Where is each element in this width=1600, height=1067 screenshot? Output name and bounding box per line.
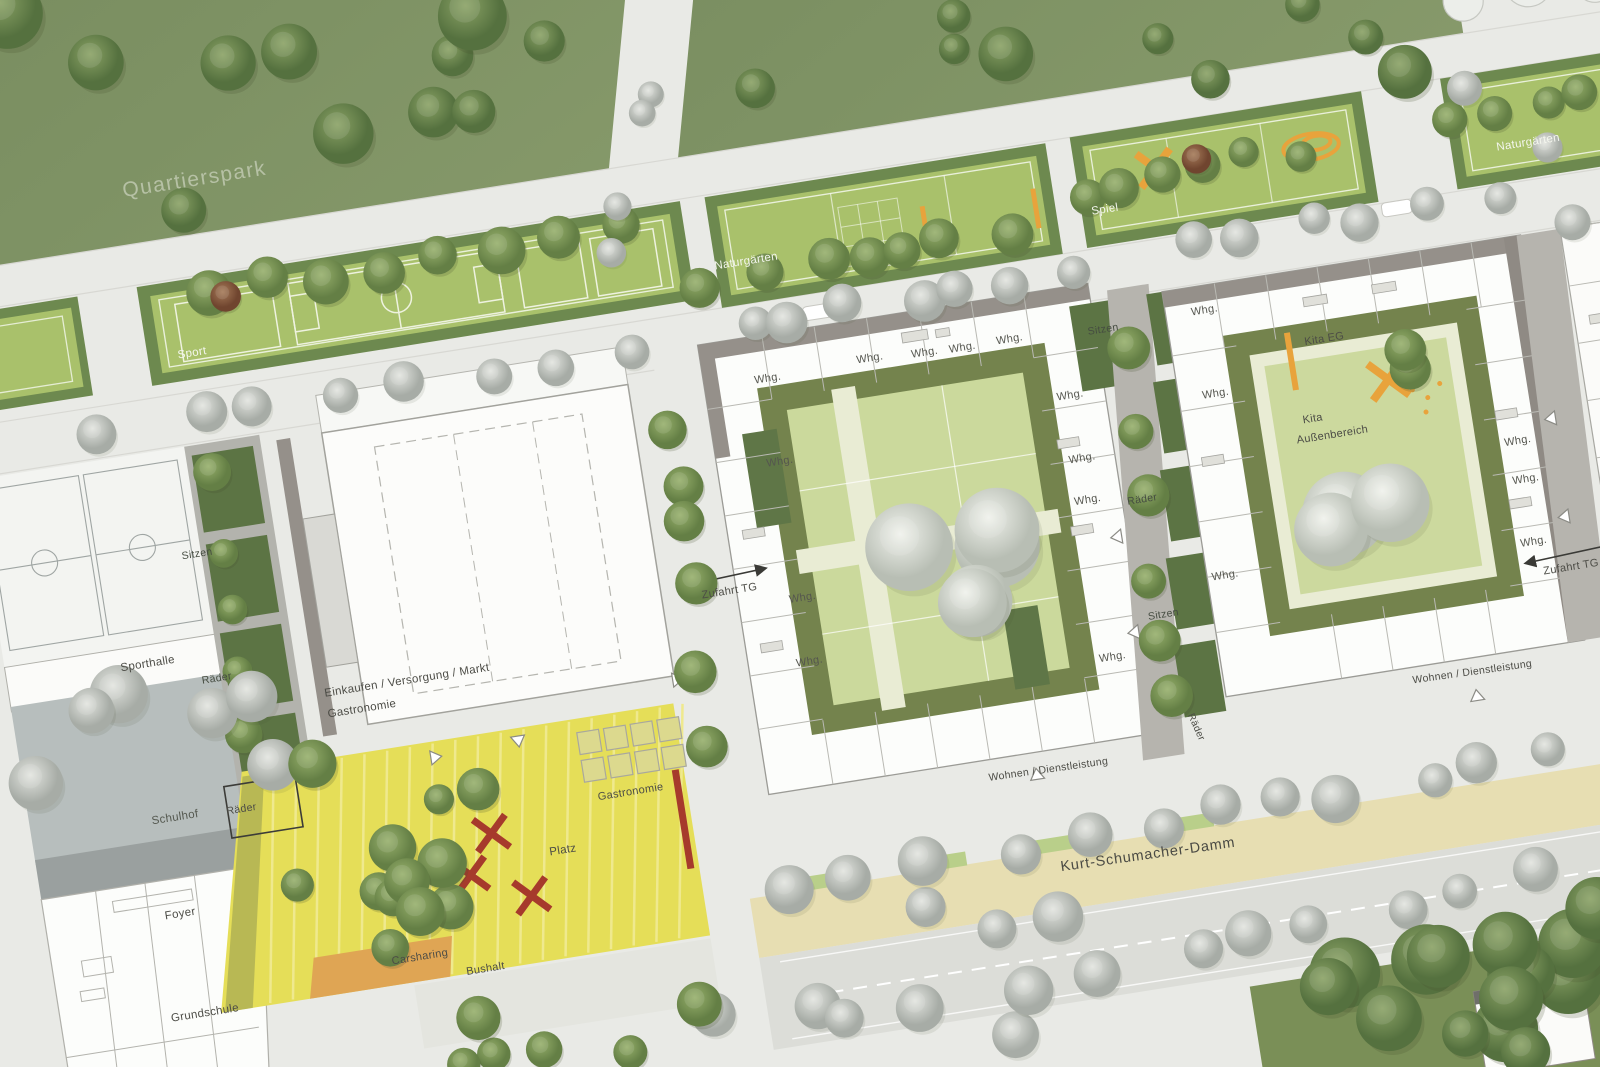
site-plan-canvas: QuartiersparkSportNaturgärtenSpielNaturg… <box>0 0 1600 1067</box>
market-hall <box>322 385 674 725</box>
site-plan: QuartiersparkSportNaturgärtenSpielNaturg… <box>0 0 1600 1067</box>
right-block <box>1162 235 1586 697</box>
